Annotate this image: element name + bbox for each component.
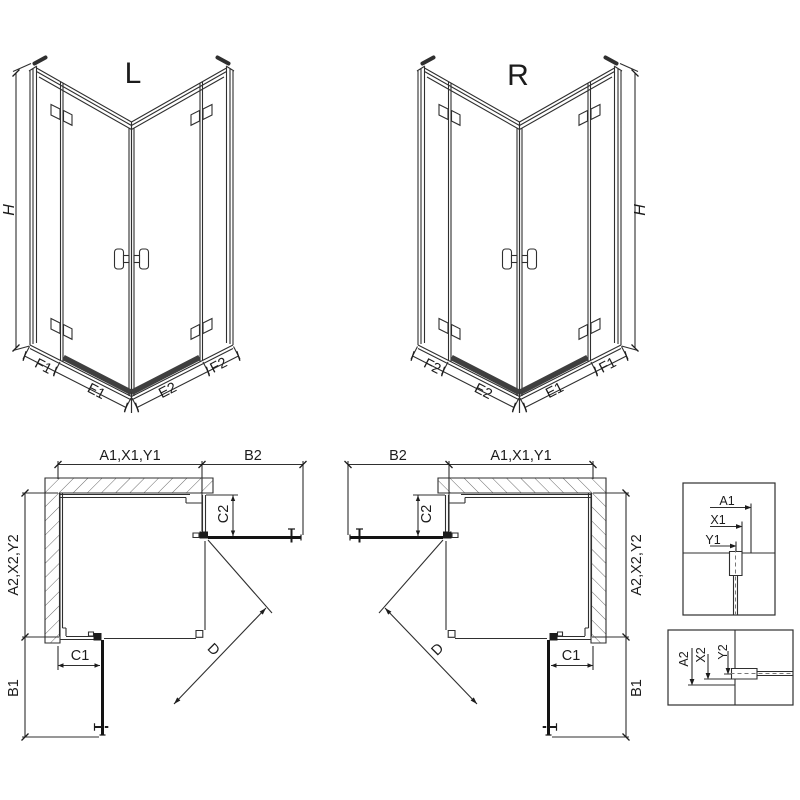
detail-wall-dim-y1: Y1 — [705, 534, 720, 547]
detail-wall-dim-a1: A1 — [719, 495, 734, 508]
plan-left-return-top-label: C2 — [217, 505, 232, 524]
plan-right-width-top-label: A1,X1,Y1 — [490, 449, 551, 464]
plan-left-door-bottom-label: B1 — [7, 679, 22, 697]
plan-left-side-label: A2,X2,Y2 — [7, 534, 22, 595]
plan-right-side-label: A2,X2,Y2 — [630, 534, 645, 595]
iso-left-height-label: H — [2, 204, 18, 216]
plan-right-door-bottom-label: B1 — [630, 679, 645, 697]
detail-box-floor-profile — [668, 630, 793, 705]
detail-floor-dim-y2: Y2 — [717, 644, 730, 659]
plan-right-return-top-label: C2 — [420, 505, 435, 524]
technical-drawing-shower-enclosure: L R H H F1 E1 E2 F2 F2 E2 E1 F1 A1,X1,Y1… — [0, 0, 800, 800]
plan-left-door-top-label: B2 — [244, 449, 262, 464]
plan-view-right — [345, 461, 630, 741]
iso-right-title: R — [507, 61, 529, 91]
detail-floor-dim-a2: A2 — [678, 651, 691, 666]
plan-view-left — [22, 461, 307, 741]
drawing-linework — [0, 0, 800, 800]
plan-right-return-bottom-label: C1 — [562, 649, 581, 664]
detail-floor-dim-x2: X2 — [695, 647, 708, 662]
iso-left-title: L — [125, 59, 142, 89]
iso-right-height-label: H — [633, 204, 649, 216]
plan-left-return-bottom-label: C1 — [71, 649, 90, 664]
detail-wall-dim-x1: X1 — [710, 514, 725, 527]
plan-left-width-top-label: A1,X1,Y1 — [99, 449, 160, 464]
plan-right-door-top-label: B2 — [389, 449, 407, 464]
